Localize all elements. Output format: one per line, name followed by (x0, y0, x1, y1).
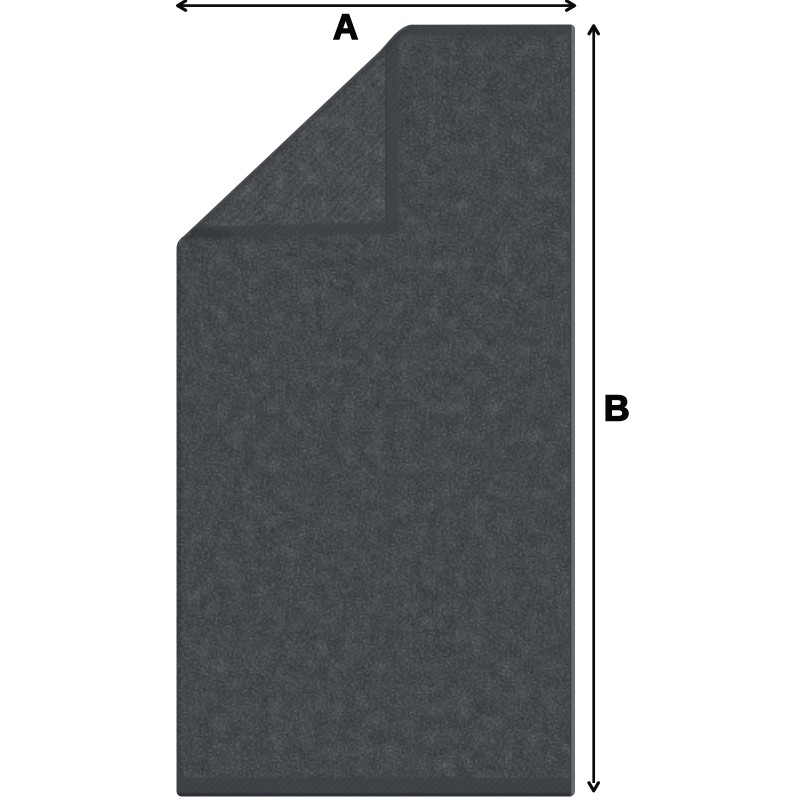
svg-text:B: B (604, 388, 630, 429)
svg-text:A: A (333, 8, 358, 47)
